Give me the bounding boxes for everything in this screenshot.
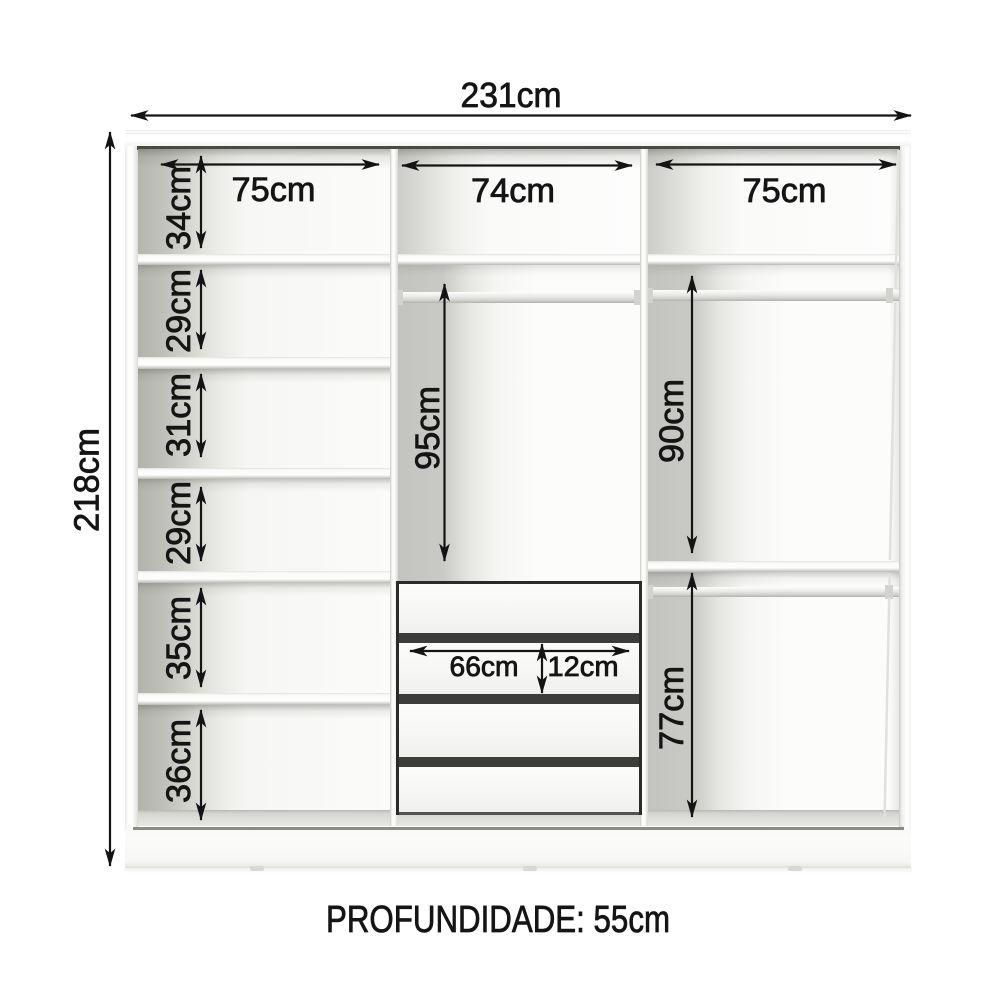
svg-text:PROFUNDIDADE: 55cm: PROFUNDIDADE: 55cm bbox=[326, 899, 670, 941]
svg-text:35cm: 35cm bbox=[160, 596, 198, 680]
svg-text:90cm: 90cm bbox=[653, 379, 691, 463]
svg-text:231cm: 231cm bbox=[461, 76, 562, 115]
svg-text:31cm: 31cm bbox=[160, 373, 198, 457]
svg-text:75cm: 75cm bbox=[743, 172, 827, 210]
svg-text:75cm: 75cm bbox=[232, 171, 316, 209]
svg-text:29cm: 29cm bbox=[160, 481, 198, 565]
svg-text:36cm: 36cm bbox=[160, 719, 198, 803]
svg-text:77cm: 77cm bbox=[653, 666, 691, 750]
svg-text:95cm: 95cm bbox=[409, 386, 447, 470]
svg-text:66cm: 66cm bbox=[450, 651, 519, 682]
svg-text:218cm: 218cm bbox=[68, 428, 107, 532]
svg-text:34cm: 34cm bbox=[160, 166, 198, 250]
svg-text:74cm: 74cm bbox=[471, 172, 555, 210]
svg-text:29cm: 29cm bbox=[160, 269, 198, 353]
svg-text:12cm: 12cm bbox=[548, 651, 619, 682]
